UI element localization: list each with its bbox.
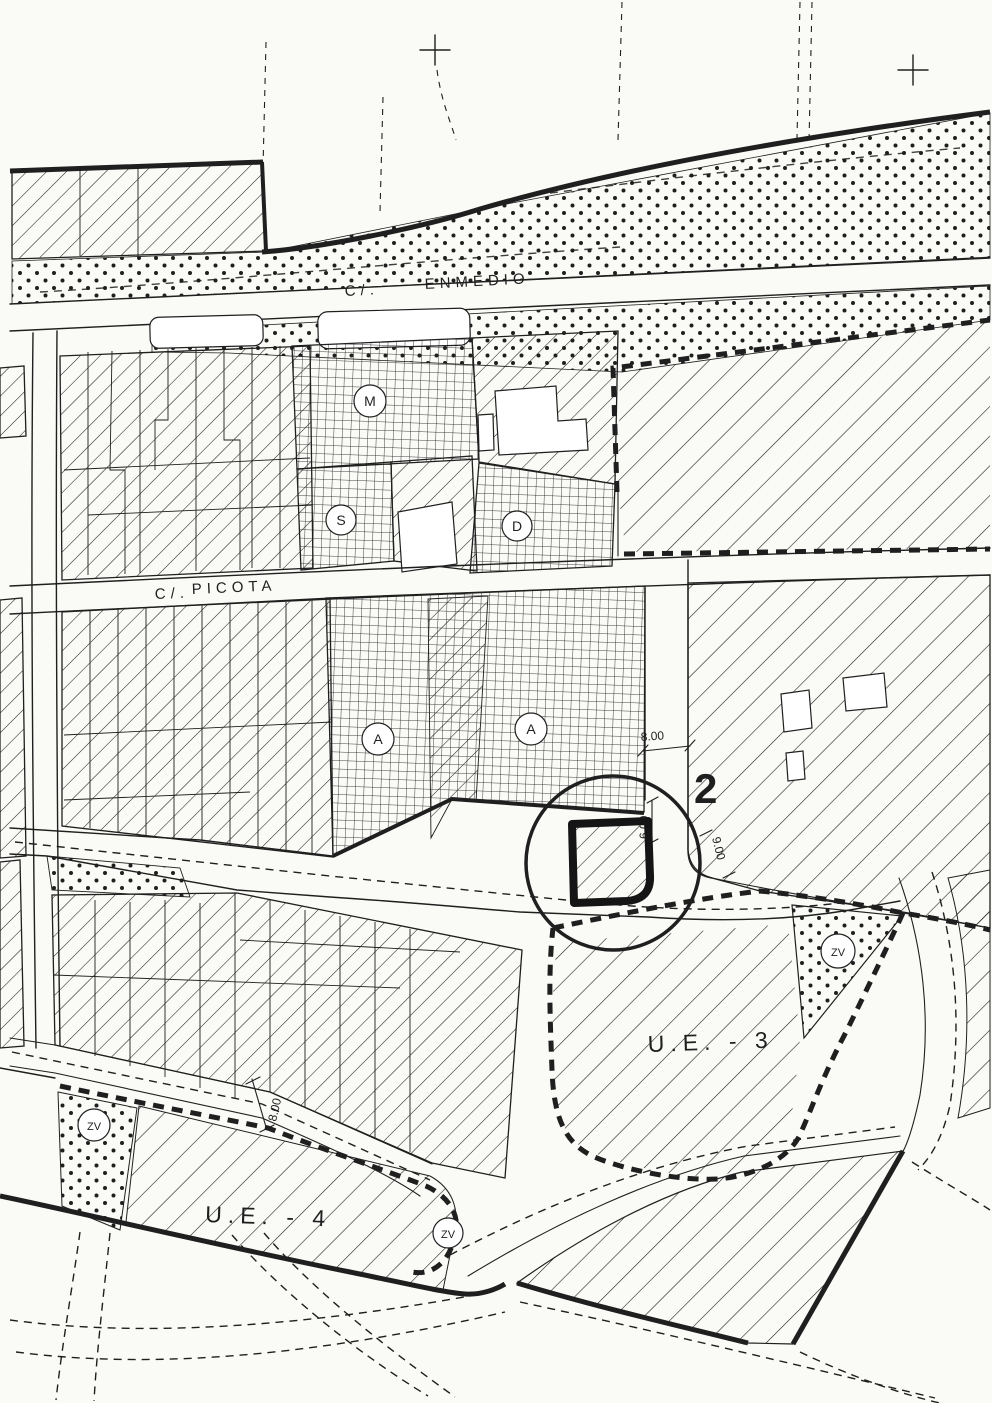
- green-zone-badge-ue4-east: ZV: [433, 1218, 463, 1248]
- ue4-label: U.E. - 4: [205, 1201, 332, 1231]
- block-marker-a-west: A: [362, 723, 394, 755]
- block-marker-m: M: [354, 385, 386, 417]
- building-outline: [781, 690, 812, 732]
- building-outline: [843, 673, 887, 711]
- block-marker-d: D: [502, 511, 532, 541]
- green-zone-badge-ue4-west: ZV: [78, 1109, 110, 1141]
- street-front-parcel: [150, 315, 264, 349]
- building-outline: [398, 502, 457, 572]
- block-picota-south-west: [62, 598, 333, 857]
- green-zone-label: ZV: [831, 947, 846, 959]
- building-outline: [478, 414, 494, 451]
- block-marker-label: A: [526, 721, 536, 737]
- block-marker-s: S: [326, 505, 356, 535]
- block-ne-hatch: [472, 331, 618, 484]
- street-enmedio-prefix: C/.: [344, 281, 379, 300]
- planning-map: C/. ENMEDIO: [0, 0, 992, 1403]
- green-zone-badge-ue3: ZV: [821, 934, 855, 968]
- block-mid-hatch: [391, 456, 477, 572]
- zone-2-number: 2: [694, 765, 717, 812]
- block-marker-label: A: [373, 731, 383, 747]
- northwest-hatched-block: [10, 162, 266, 259]
- subject-parcel: [572, 821, 650, 903]
- block-marker-label: S: [336, 512, 345, 528]
- zone-2-hatched: 2: [688, 575, 990, 928]
- street-picota-prefix: C/.: [154, 585, 189, 603]
- block-marker-a-east: A: [515, 713, 547, 745]
- block-marker-label: M: [364, 393, 376, 409]
- block-enmedio-picota-west: [60, 346, 313, 580]
- block-marker-label: D: [512, 518, 522, 534]
- dimension-label: 8.00: [640, 728, 665, 744]
- green-zone-label: ZV: [441, 1229, 456, 1241]
- building-outline: [786, 751, 805, 781]
- planning-map-page: C/. ENMEDIO: [0, 0, 992, 1403]
- ue3-label: U.E. - 3: [647, 1027, 774, 1057]
- green-zone-label: ZV: [87, 1121, 102, 1133]
